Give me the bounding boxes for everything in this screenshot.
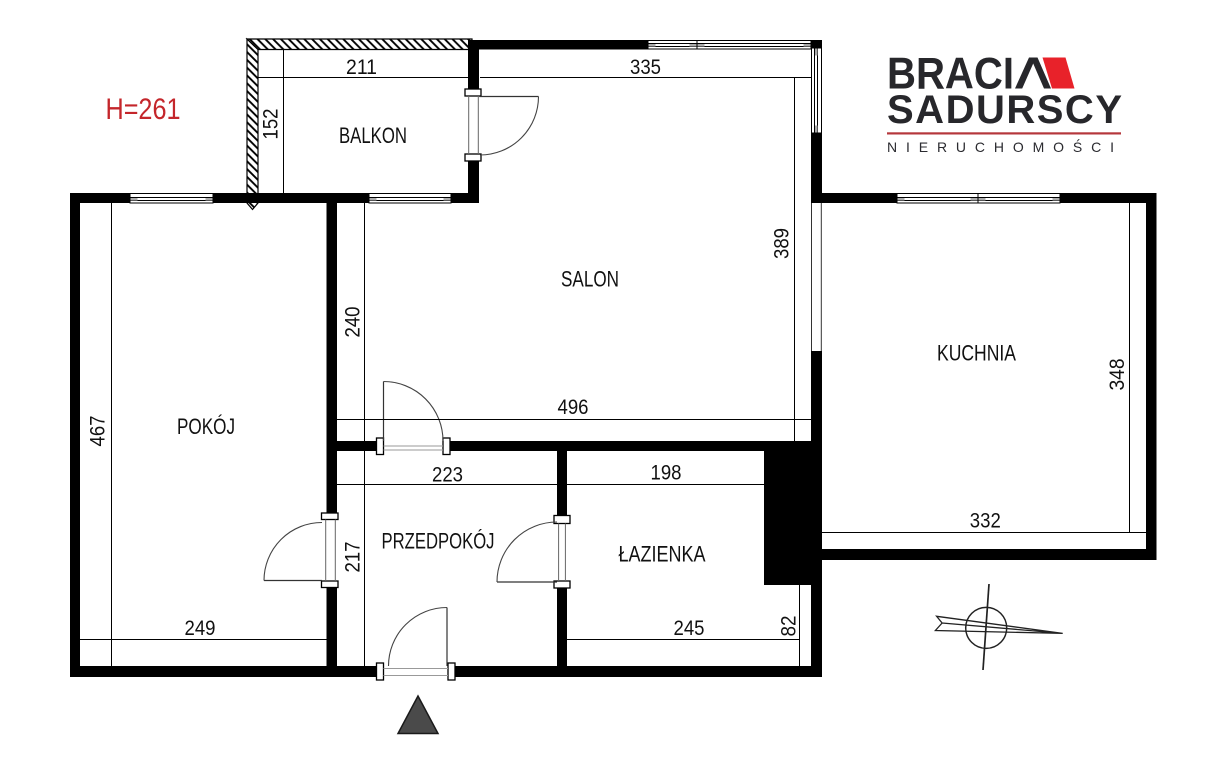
svg-text:348: 348 <box>1105 358 1129 390</box>
svg-text:ŁAZIENKA: ŁAZIENKA <box>619 542 706 567</box>
svg-text:KUCHNIA: KUCHNIA <box>937 341 1016 366</box>
svg-text:245: 245 <box>674 616 705 640</box>
svg-text:POKÓJ: POKÓJ <box>177 414 235 439</box>
svg-text:NIERUCHOMOŚCI: NIERUCHOMOŚCI <box>887 138 1114 155</box>
svg-text:H=261: H=261 <box>106 93 181 126</box>
svg-text:389: 389 <box>770 228 794 259</box>
svg-text:152: 152 <box>259 109 283 140</box>
svg-text:223: 223 <box>432 463 463 487</box>
svg-text:BALKON: BALKON <box>339 123 407 148</box>
svg-text:PRZEDPOKÓJ: PRZEDPOKÓJ <box>382 529 495 554</box>
svg-text:249: 249 <box>185 616 216 640</box>
svg-text:467: 467 <box>86 416 110 447</box>
svg-text:SALON: SALON <box>561 267 619 292</box>
svg-text:211: 211 <box>346 55 377 79</box>
svg-text:496: 496 <box>558 395 589 419</box>
svg-text:82: 82 <box>777 616 801 637</box>
svg-text:SADURSCY: SADURSCY <box>887 88 1122 132</box>
svg-text:335: 335 <box>630 55 661 79</box>
svg-text:217: 217 <box>341 542 365 573</box>
svg-text:198: 198 <box>651 461 682 485</box>
svg-text:332: 332 <box>970 509 1001 533</box>
svg-text:240: 240 <box>341 306 365 337</box>
